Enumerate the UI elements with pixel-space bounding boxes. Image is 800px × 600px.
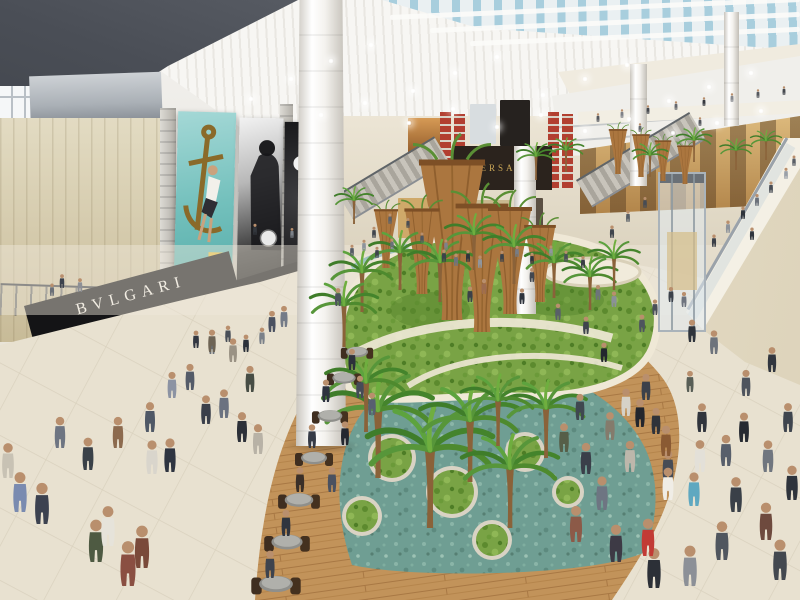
palm-tree — [462, 435, 558, 528]
pedestrian-figure — [595, 285, 600, 300]
pedestrian-figure — [605, 412, 614, 440]
spotlight — [368, 42, 374, 48]
spotlight — [624, 62, 630, 68]
spotlight — [410, 88, 416, 94]
store-lamp — [84, 396, 100, 406]
pedestrian-figure — [642, 519, 655, 556]
pedestrian-figure — [135, 526, 149, 568]
pedestrian-figure — [89, 520, 103, 562]
pedestrian-figure — [686, 371, 693, 392]
pedestrian-figure — [639, 315, 645, 332]
mall-interior-rendering: VERSACE — [0, 0, 800, 600]
pedestrian-figure — [721, 435, 731, 466]
pedestrian-figure — [647, 548, 660, 588]
spotlight — [328, 58, 334, 64]
pedestrian-figure — [581, 443, 591, 474]
cafe-table — [264, 535, 310, 552]
pedestrian-figure — [739, 413, 749, 442]
ceiling-spotlights — [0, 0, 800, 260]
planter-islands — [342, 432, 584, 560]
spotlight — [288, 76, 294, 82]
pedestrian-figure — [467, 287, 472, 302]
pedestrian-figure — [783, 403, 793, 432]
spotlight — [758, 108, 764, 114]
pedestrian-figure — [576, 394, 585, 420]
spotlight — [714, 120, 720, 126]
pedestrian-figure — [356, 376, 364, 398]
pedestrian-figure — [652, 408, 661, 434]
pedestrian-figure — [611, 292, 616, 307]
spotlight — [494, 124, 500, 130]
pedestrian-figure — [642, 374, 651, 400]
pedestrian-figure — [625, 441, 635, 472]
pedestrian-figure — [583, 317, 589, 334]
pedestrian-figure — [35, 483, 49, 524]
cafe-table — [341, 347, 373, 359]
spotlight — [406, 120, 412, 126]
pedestrian-figure — [760, 503, 773, 540]
spotlight — [452, 70, 458, 76]
pedestrian-figure — [652, 300, 657, 315]
pedestrian-figure — [120, 541, 135, 586]
store-lamp — [134, 380, 150, 390]
spotlight — [666, 98, 672, 104]
spotlight — [248, 96, 254, 102]
pedestrian-figure — [663, 468, 674, 500]
pedestrian-figure — [348, 349, 355, 370]
palm-tree — [506, 381, 586, 459]
pedestrian-figure — [610, 525, 623, 562]
pedestrian-figure — [570, 506, 582, 542]
pedestrian-figure — [621, 389, 630, 416]
pedestrian-figure — [786, 466, 798, 500]
pedestrian-figure — [328, 467, 336, 492]
spotlight — [318, 112, 324, 118]
pedestrian-figure — [13, 472, 26, 512]
spotlight — [450, 106, 456, 112]
bulgari-boutique — [26, 330, 238, 482]
spotlight — [626, 116, 632, 122]
pedestrian-figure — [697, 403, 707, 432]
spotlight — [494, 54, 500, 60]
spotlight — [582, 128, 588, 134]
pedestrian-figure — [683, 546, 697, 586]
spotlight — [538, 112, 544, 118]
spotlight — [582, 76, 588, 82]
spotlight — [706, 84, 712, 90]
pedestrian-figure — [268, 311, 275, 332]
cafe-table — [251, 576, 300, 594]
pedestrian-figure — [601, 343, 608, 362]
pedestrian-figure — [635, 399, 644, 427]
pedestrian-figure — [763, 440, 774, 472]
pedestrian-figure — [265, 551, 274, 578]
pedestrian-figure — [2, 443, 14, 478]
pedestrian-figure — [596, 476, 607, 510]
pedestrian-figure — [688, 472, 699, 506]
pedestrian-figure — [253, 424, 263, 454]
pedestrian-figure — [559, 423, 569, 452]
spotlight — [362, 100, 368, 106]
spotlight — [670, 130, 676, 136]
pedestrian-figure — [661, 426, 671, 456]
pedestrian-figure — [773, 540, 787, 580]
palm-tree — [368, 407, 493, 528]
pedestrian-figure — [695, 440, 706, 472]
pedestrian-figure — [742, 370, 751, 396]
spotlight — [748, 70, 754, 76]
pedestrian-figure — [663, 450, 674, 482]
spotlight — [540, 92, 546, 98]
pedestrian-figure — [730, 477, 742, 512]
store-lamp — [182, 366, 198, 376]
palm-tree — [461, 375, 535, 446]
pedestrian-figure — [101, 506, 114, 546]
pedestrian-figure — [296, 467, 304, 492]
palm-tree — [420, 386, 519, 482]
pedestrian-figure — [716, 521, 729, 560]
pedestrian-figure — [368, 393, 376, 415]
pedestrian-figure — [555, 304, 561, 320]
